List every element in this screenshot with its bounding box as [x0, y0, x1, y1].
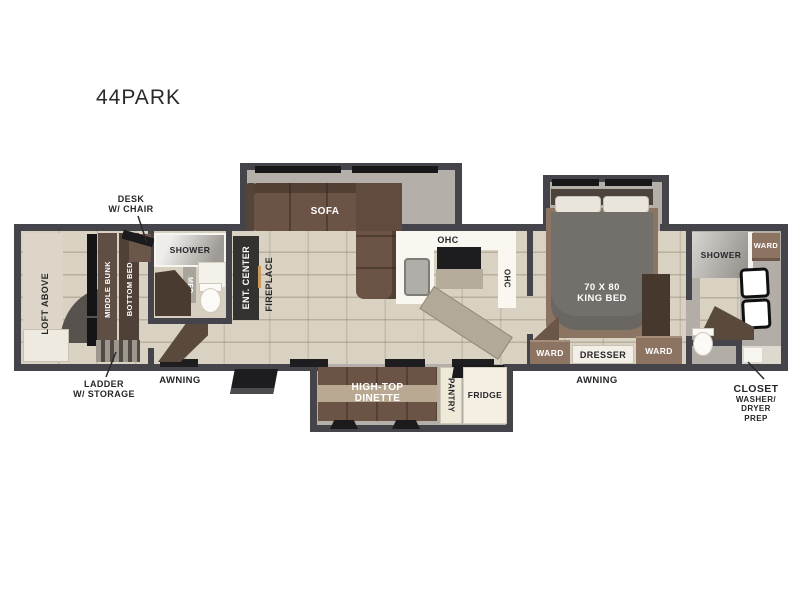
floor-vent: [290, 359, 328, 367]
dresser: DRESSER: [572, 345, 634, 364]
washer-dryer-stack: [739, 267, 771, 330]
fireplace-area: FIREPLACE: [261, 244, 277, 324]
floorplan-44park: 44PARK MIDDLE BUNK BOTTOM BED LOFT AB: [0, 0, 800, 600]
fireplace-label: FIREPLACE: [264, 257, 274, 312]
king-bed-label-area: 70 X 80 KING BED: [551, 280, 653, 308]
floor-vent: [385, 359, 425, 367]
wall-bath-right: [226, 231, 232, 324]
dinette-leg: [330, 420, 358, 429]
middle-bunk: MIDDLE BUNK: [98, 233, 117, 346]
ohc-side-area: OHC: [499, 254, 515, 302]
wardrobe-bedroom-left: WARD: [530, 340, 570, 364]
wall-bath-bottom: [148, 318, 232, 324]
ohc-side-label: OHC: [503, 269, 512, 288]
loft-above-label: LOFT ABOVE: [40, 273, 50, 335]
entertainment-center: ENT. CENTER: [233, 236, 259, 320]
ladder-label-1: LADDER: [73, 379, 135, 389]
dinette-label-2: DINETTE: [352, 393, 404, 405]
ladder-label-2: W/ STORAGE: [73, 389, 135, 399]
wall-bunk-bath-lower: [148, 348, 154, 364]
middle-bunk-label: MIDDLE BUNK: [103, 261, 112, 318]
awning-left-label: AWNING: [148, 374, 212, 386]
pillow: [555, 196, 601, 213]
king-bed-mattress: [551, 212, 653, 330]
dresser-label: DRESSER: [580, 350, 626, 360]
stove: [437, 247, 481, 269]
desk-label-2: W/ CHAIR: [108, 204, 153, 214]
bottom-bed-label: BOTTOM BED: [125, 262, 134, 316]
dinette-label-area: HIGH-TOP DINETTE: [318, 374, 437, 412]
dinette-leg: [392, 420, 420, 429]
closet-label-1: CLOSET: [734, 383, 779, 395]
window: [352, 166, 438, 173]
sofa-corner: [356, 183, 402, 231]
entry-step: [230, 369, 278, 394]
window: [605, 179, 652, 186]
kitchen-sink: [404, 258, 430, 296]
closet-label-2: WASHER/: [734, 395, 779, 404]
wardrobe-bedroom-right: WARD: [636, 336, 682, 364]
closet-label-4: PREP: [734, 414, 779, 423]
wardrobe-rear: WARD: [752, 233, 780, 261]
desk-label-1: DESK: [108, 194, 153, 204]
bunk-rail: [87, 234, 97, 316]
front-shower-label: SHOWER: [170, 245, 211, 255]
sofa-label: SOFA: [295, 203, 355, 219]
closet-label-3: DRYER: [734, 404, 779, 413]
rear-toilet: [693, 332, 713, 356]
loft-above-area: LOFT ABOVE: [36, 248, 54, 360]
ohc-top-label: OHC: [396, 233, 500, 247]
pillow: [603, 196, 649, 213]
awning-right-label: AWNING: [563, 374, 631, 386]
washer: [739, 267, 770, 298]
desk-callout: DESK W/ CHAIR: [94, 193, 168, 215]
ent-center-label: ENT. CENTER: [241, 246, 251, 309]
ladder-with-storage: [96, 340, 140, 362]
bedroom-tv: [642, 274, 670, 344]
king-bed-label-2: KING BED: [577, 294, 627, 305]
rear-shower-label: SHOWER: [701, 250, 742, 260]
ward-right-label: WARD: [645, 346, 673, 356]
wall-kitchen-bedroom-upper: [527, 231, 533, 296]
window: [552, 179, 599, 186]
ward-rear-label: WARD: [754, 241, 779, 250]
fridge-label: FRIDGE: [463, 388, 507, 402]
ward-left-label: WARD: [536, 348, 564, 358]
dinette-label-1: HIGH-TOP: [352, 382, 404, 394]
closet-shelf: [744, 348, 762, 362]
page-title: 44PARK: [96, 86, 181, 110]
ladder-callout: LADDER W/ STORAGE: [58, 378, 150, 400]
stove-counter: [436, 269, 483, 289]
pantry-label: PANTRY: [447, 378, 456, 412]
closet-callout: CLOSET WASHER/ DRYER PREP: [722, 380, 790, 426]
window: [255, 166, 341, 173]
toilet: [200, 288, 221, 313]
